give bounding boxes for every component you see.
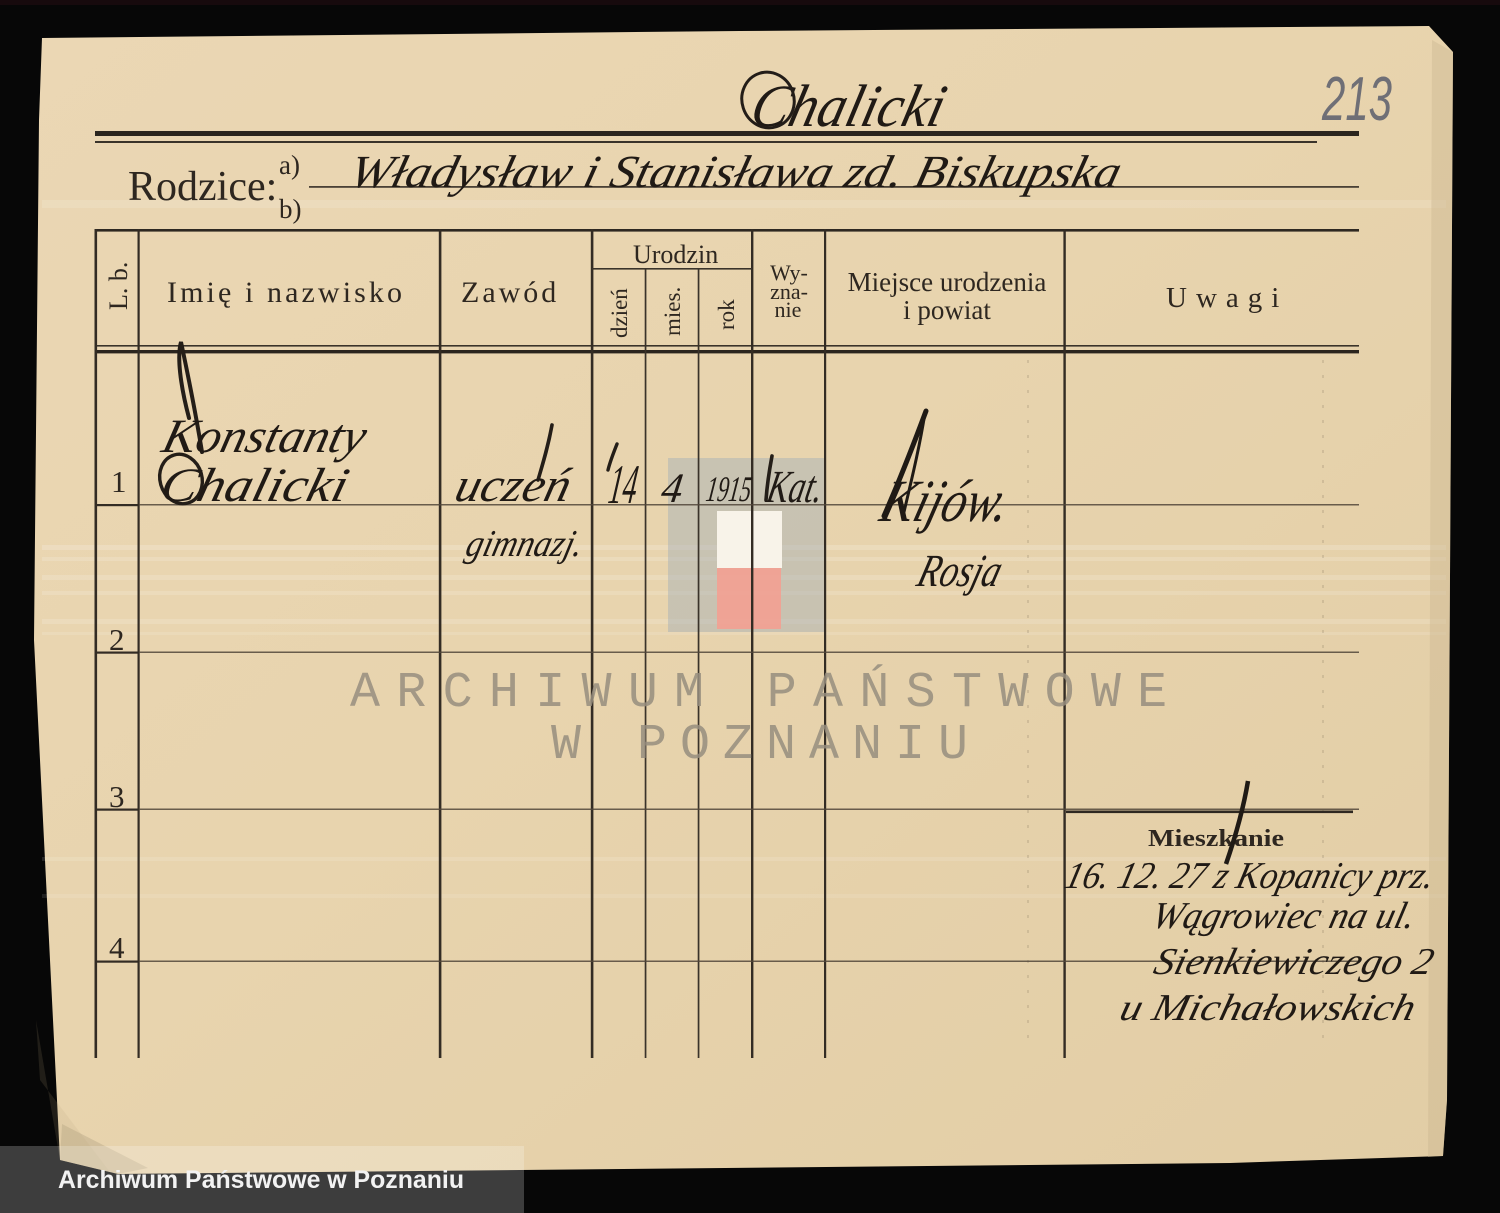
- svg-text:2: 2: [109, 622, 125, 657]
- svg-text:4: 4: [109, 930, 125, 965]
- svg-text:1: 1: [111, 464, 127, 499]
- svg-text:Chalicki: Chalicki: [745, 74, 953, 140]
- svg-text:Rodzice:: Rodzice:: [128, 164, 277, 210]
- svg-text:Chalicki: Chalicki: [155, 459, 354, 512]
- svg-text:Mieszkanie: Mieszkanie: [1148, 826, 1284, 852]
- svg-text:3: 3: [109, 779, 125, 814]
- svg-text:uczeń: uczeń: [450, 459, 577, 512]
- svg-text:rok: rok: [714, 299, 739, 330]
- svg-text:u Michałowskich: u Michałowskich: [1116, 988, 1420, 1029]
- svg-text:Rosja: Rosja: [911, 546, 1008, 597]
- svg-text:16. 12. 27 z Kopanicy prz.: 16. 12. 27 z Kopanicy prz.: [1061, 856, 1439, 897]
- svg-text:b): b): [279, 194, 302, 224]
- svg-text:ARCHIWUM PAŃSTWOWE: ARCHIWUM PAŃSTWOWE: [350, 664, 1184, 722]
- svg-text:dzień: dzień: [607, 288, 632, 338]
- svg-text:mies.: mies.: [660, 287, 685, 336]
- svg-text:gimnazj.: gimnazj.: [462, 524, 588, 565]
- svg-text:Sienkiewiczego 2: Sienkiewiczego 2: [1150, 942, 1438, 983]
- svg-text:a): a): [279, 150, 300, 180]
- svg-text:nie: nie: [775, 297, 802, 322]
- svg-text:Miejsce urodzenia: Miejsce urodzenia: [848, 267, 1047, 297]
- svg-text:L. b.: L. b.: [104, 262, 133, 310]
- svg-text:Uwagi: Uwagi: [1166, 282, 1288, 314]
- svg-text:Kijów.: Kijów.: [873, 468, 1019, 535]
- svg-text:Konstanty: Konstanty: [156, 410, 373, 463]
- svg-text:Zawód: Zawód: [461, 276, 559, 309]
- svg-text:Kat.: Kat.: [762, 462, 828, 512]
- svg-text:Wągrowiec na ul.: Wągrowiec na ul.: [1148, 896, 1420, 937]
- svg-text:Archiwum Państwowe w Poznaniu: Archiwum Państwowe w Poznaniu: [58, 1166, 464, 1194]
- svg-text:Urodzin: Urodzin: [633, 240, 718, 269]
- svg-text:1915: 1915: [704, 469, 755, 509]
- svg-text:W POZNANIU: W POZNANIU: [551, 717, 981, 774]
- svg-text:i powiat: i powiat: [903, 295, 991, 325]
- svg-text:Imię i nazwisko: Imię i nazwisko: [167, 276, 409, 309]
- svg-text:Władysław i Stanisława zd. Bis: Władysław i Stanisława zd. Biskupska: [344, 147, 1127, 198]
- svg-text:213: 213: [1321, 65, 1392, 134]
